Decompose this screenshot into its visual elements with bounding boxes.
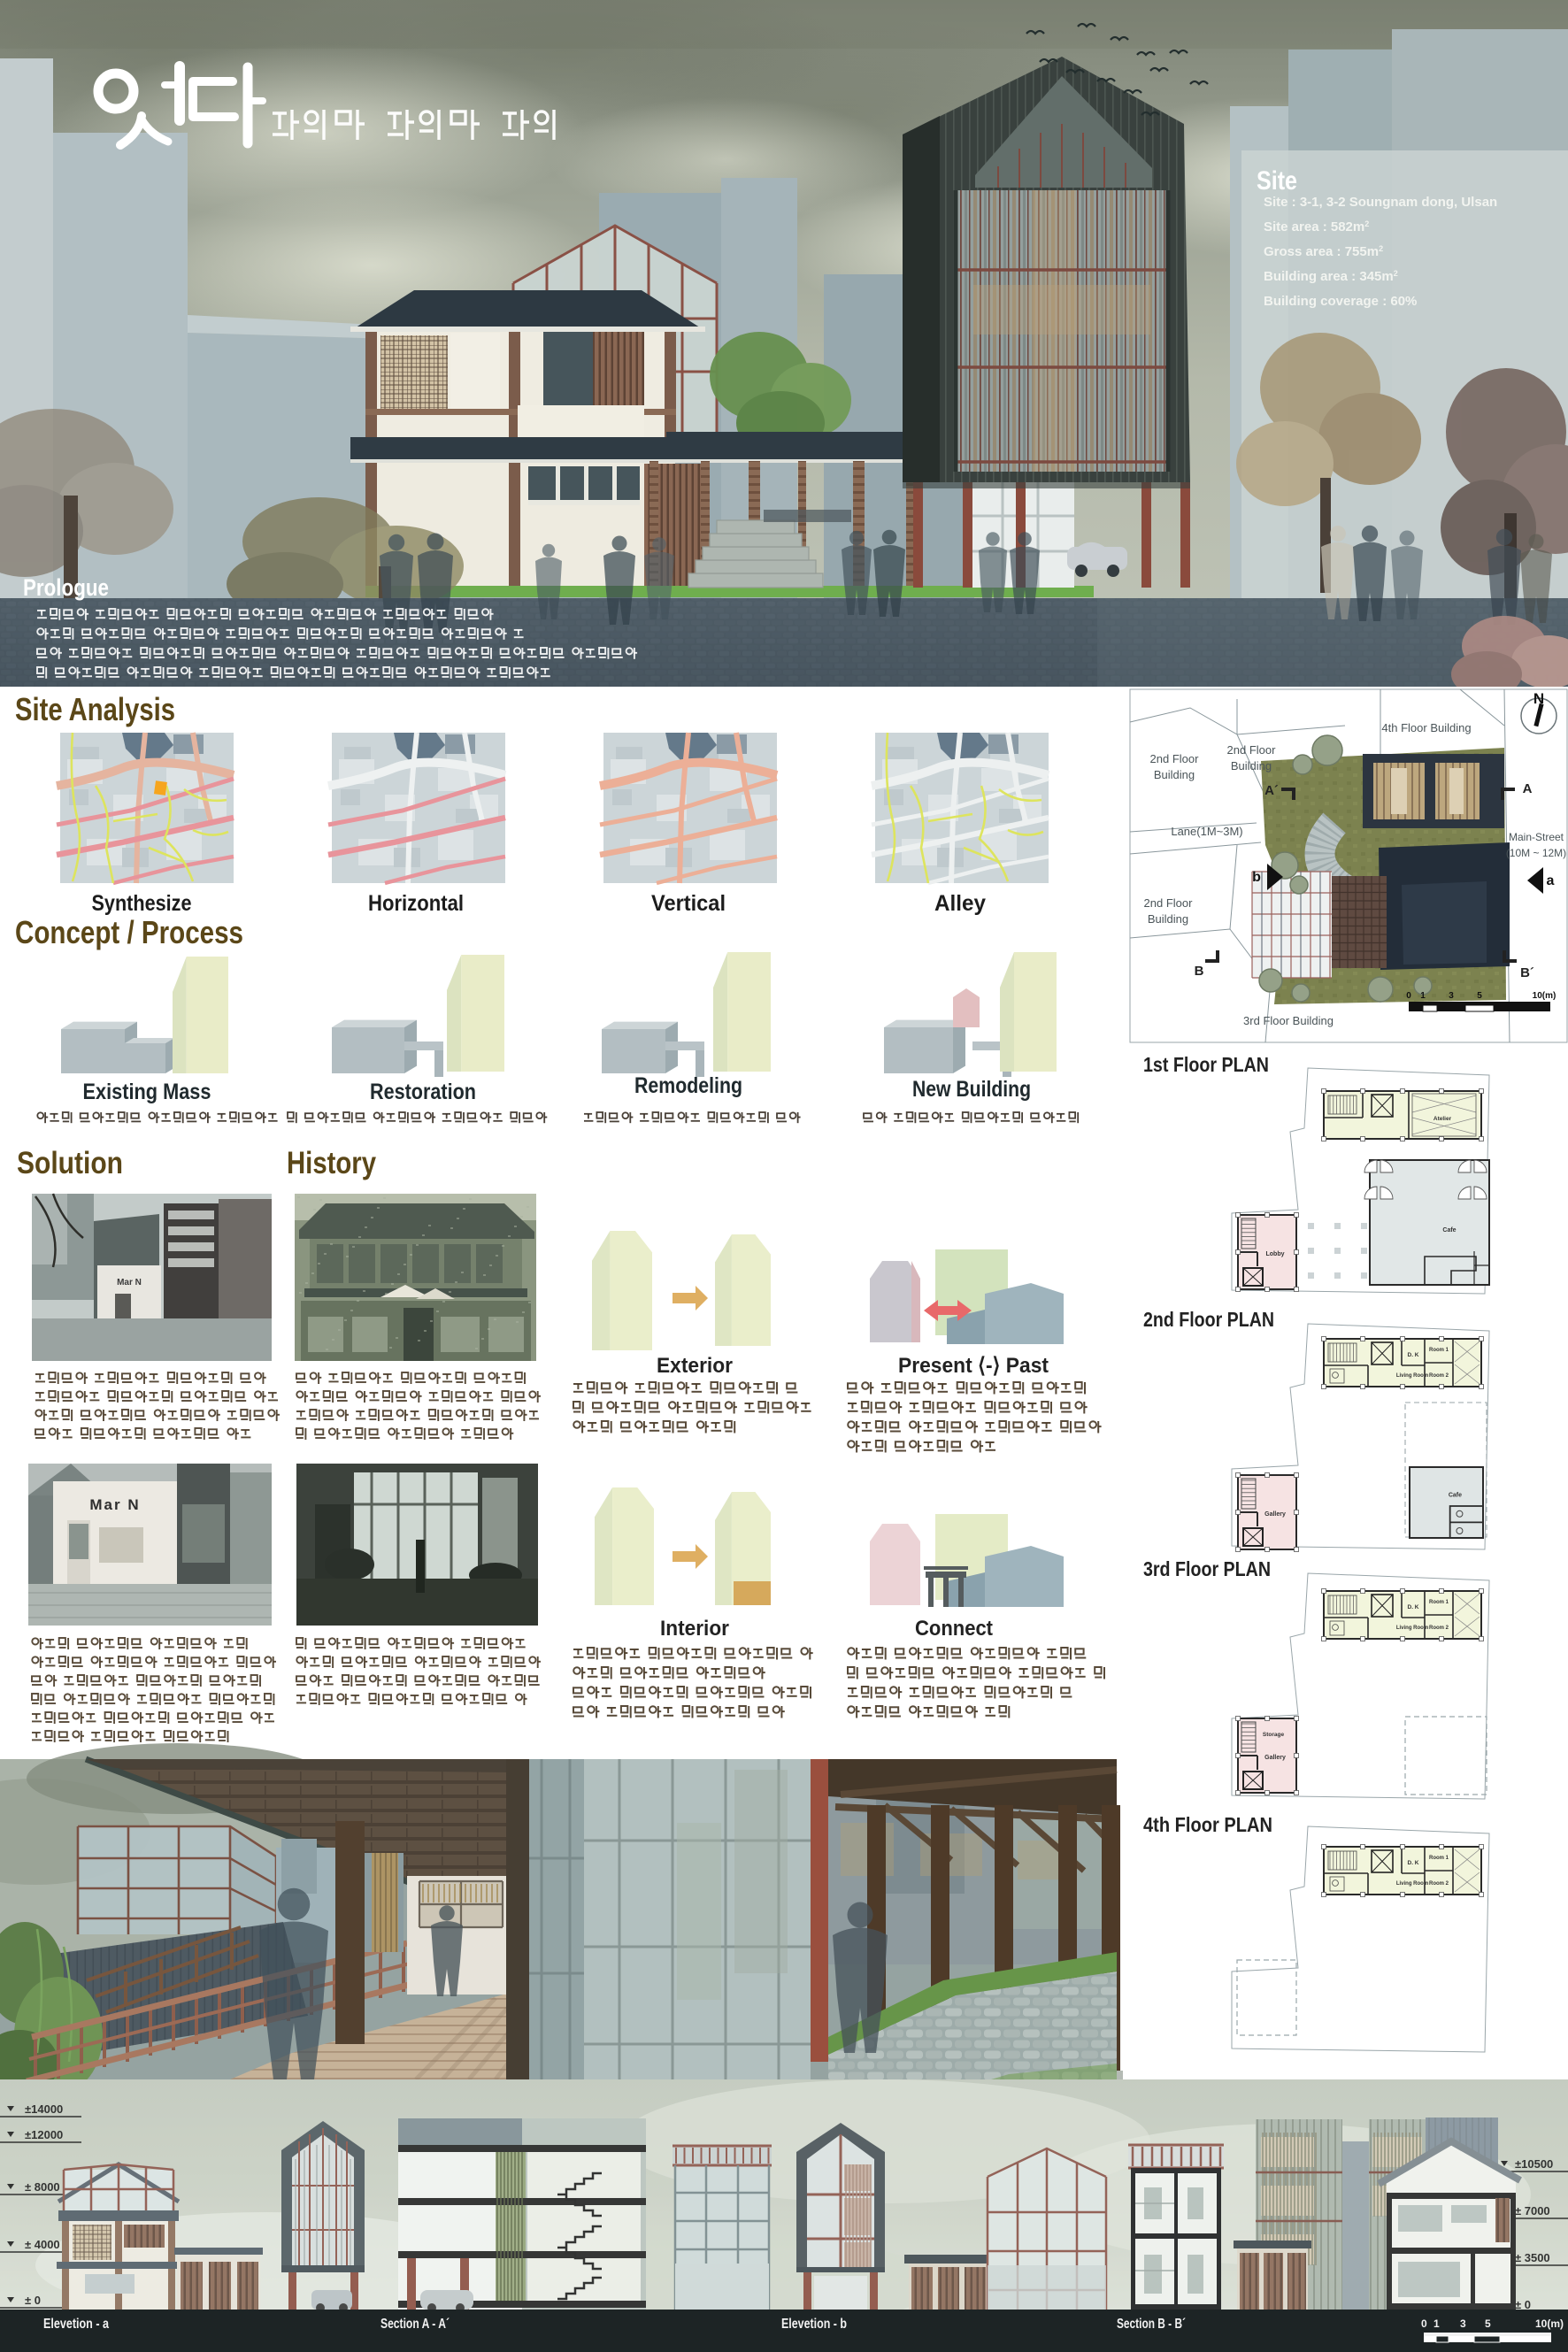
svg-text:Building coverage : 60%: Building coverage : 60% <box>1264 294 1417 309</box>
svg-text:Room 2: Room 2 <box>1429 1881 1449 1887</box>
svg-text:Main-Street: Main-Street <box>1509 831 1564 843</box>
svg-text:2nd Floor: 2nd Floor <box>1150 752 1200 765</box>
svg-text:Solution: Solution <box>17 1146 123 1180</box>
svg-text:5: 5 <box>1485 2317 1491 2330</box>
svg-text:Site: Site <box>1257 166 1297 196</box>
svg-text:Cafe: Cafe <box>1442 1227 1456 1234</box>
svg-text:History: History <box>287 1146 376 1180</box>
svg-text:2nd Floor: 2nd Floor <box>1227 743 1277 757</box>
svg-text:Gallery: Gallery <box>1264 1755 1286 1761</box>
svg-text:B´: B´ <box>1520 965 1534 980</box>
svg-text:Storage: Storage <box>1263 1732 1285 1738</box>
svg-text:Building: Building <box>1154 768 1195 781</box>
svg-text:Room 1: Room 1 <box>1429 1348 1449 1353</box>
svg-text:Elevetion - a: Elevetion - a <box>43 2317 109 2332</box>
svg-text:Present ⟨-⟩ Past: Present ⟨-⟩ Past <box>898 1354 1049 1378</box>
svg-text:Lane(1M~3M): Lane(1M~3M) <box>1171 825 1242 838</box>
svg-text:Living Room: Living Room <box>1396 1373 1428 1379</box>
svg-text:4th Floor Building: 4th Floor Building <box>1381 721 1471 734</box>
svg-text:D. K: D. K <box>1408 1352 1419 1358</box>
svg-text:5: 5 <box>1477 991 1482 1001</box>
svg-text:(10M ~ 12M): (10M ~ 12M) <box>1506 847 1566 859</box>
svg-text:Interior: Interior <box>660 1617 729 1641</box>
svg-text:0: 0 <box>1406 991 1411 1001</box>
svg-text:Building: Building <box>1231 759 1272 772</box>
svg-text:Room 2: Room 2 <box>1429 1626 1449 1631</box>
svg-text:a: a <box>1547 873 1555 888</box>
svg-text:Gallery: Gallery <box>1264 1511 1286 1518</box>
svg-text:1: 1 <box>1433 2317 1440 2330</box>
svg-text:10(m): 10(m) <box>1535 2317 1564 2330</box>
svg-text:A: A <box>1523 781 1533 796</box>
svg-text:Living Room: Living Room <box>1396 1881 1428 1887</box>
svg-text:Cafe: Cafe <box>1449 1493 1462 1499</box>
svg-text:Remodeling: Remodeling <box>634 1073 742 1098</box>
svg-text:Building area : 345m2: Building area : 345m2 <box>1264 269 1398 284</box>
svg-text:Site : 3-1, 3-2 Soungnam dong: Site : 3-1, 3-2 Soungnam dong, Ulsan <box>1264 195 1497 210</box>
svg-text:10(m): 10(m) <box>1533 991 1556 1001</box>
svg-text:Lobby: Lobby <box>1266 1251 1285 1257</box>
svg-text:D. K: D. K <box>1408 1604 1419 1610</box>
svg-text:Living Room: Living Room <box>1396 1626 1428 1631</box>
svg-text:0: 0 <box>1421 2317 1427 2330</box>
svg-text:b: b <box>1252 870 1261 885</box>
svg-text:Site Analysis: Site Analysis <box>15 691 175 727</box>
svg-text:Prologue: Prologue <box>23 574 109 601</box>
svg-text:Gross area : 755m2: Gross area : 755m2 <box>1264 244 1383 259</box>
svg-text:Room 1: Room 1 <box>1429 1856 1449 1861</box>
svg-text:Mar N: Mar N <box>117 1278 142 1287</box>
svg-text:4th Floor PLAN: 4th Floor PLAN <box>1143 1813 1272 1836</box>
svg-text:3: 3 <box>1460 2317 1466 2330</box>
svg-text:Concept / Process: Concept / Process <box>15 914 243 950</box>
svg-text:Atelier: Atelier <box>1433 1116 1452 1122</box>
svg-text:Synthesize: Synthesize <box>92 891 192 916</box>
svg-text:Vertical: Vertical <box>651 891 726 916</box>
svg-text:Mar N: Mar N <box>89 1496 140 1513</box>
svg-text:Site area : 582m2: Site area : 582m2 <box>1264 219 1369 234</box>
svg-text:Restoration: Restoration <box>370 1080 476 1104</box>
svg-text:1st Floor PLAN: 1st Floor PLAN <box>1143 1053 1269 1076</box>
svg-text:B: B <box>1195 964 1204 979</box>
svg-text:New Building: New Building <box>912 1077 1031 1102</box>
svg-text:Room 2: Room 2 <box>1429 1373 1449 1379</box>
svg-text:Building: Building <box>1148 912 1188 926</box>
svg-text:2nd Floor: 2nd Floor <box>1144 896 1194 910</box>
svg-text:2nd Floor PLAN: 2nd Floor PLAN <box>1143 1308 1274 1331</box>
svg-text:Existing Mass: Existing Mass <box>83 1080 211 1104</box>
svg-text:Connect: Connect <box>915 1617 993 1641</box>
svg-text:3rd Floor Building: 3rd Floor Building <box>1243 1014 1334 1027</box>
svg-text:Elevetion - b: Elevetion - b <box>781 2317 847 2332</box>
svg-text:3rd Floor PLAN: 3rd Floor PLAN <box>1143 1557 1271 1580</box>
svg-text:A´: A´ <box>1264 783 1279 798</box>
svg-text:3: 3 <box>1449 991 1454 1001</box>
svg-text:Section B - B´: Section B - B´ <box>1117 2317 1186 2332</box>
svg-text:D. K: D. K <box>1408 1860 1419 1866</box>
svg-text:Exterior: Exterior <box>657 1354 733 1378</box>
svg-text:Room 1: Room 1 <box>1429 1600 1449 1605</box>
svg-text:1: 1 <box>1420 991 1426 1001</box>
svg-text:Alley: Alley <box>934 891 986 916</box>
svg-text:Section A - A´: Section A - A´ <box>380 2317 450 2332</box>
svg-text:Horizontal: Horizontal <box>368 891 464 916</box>
